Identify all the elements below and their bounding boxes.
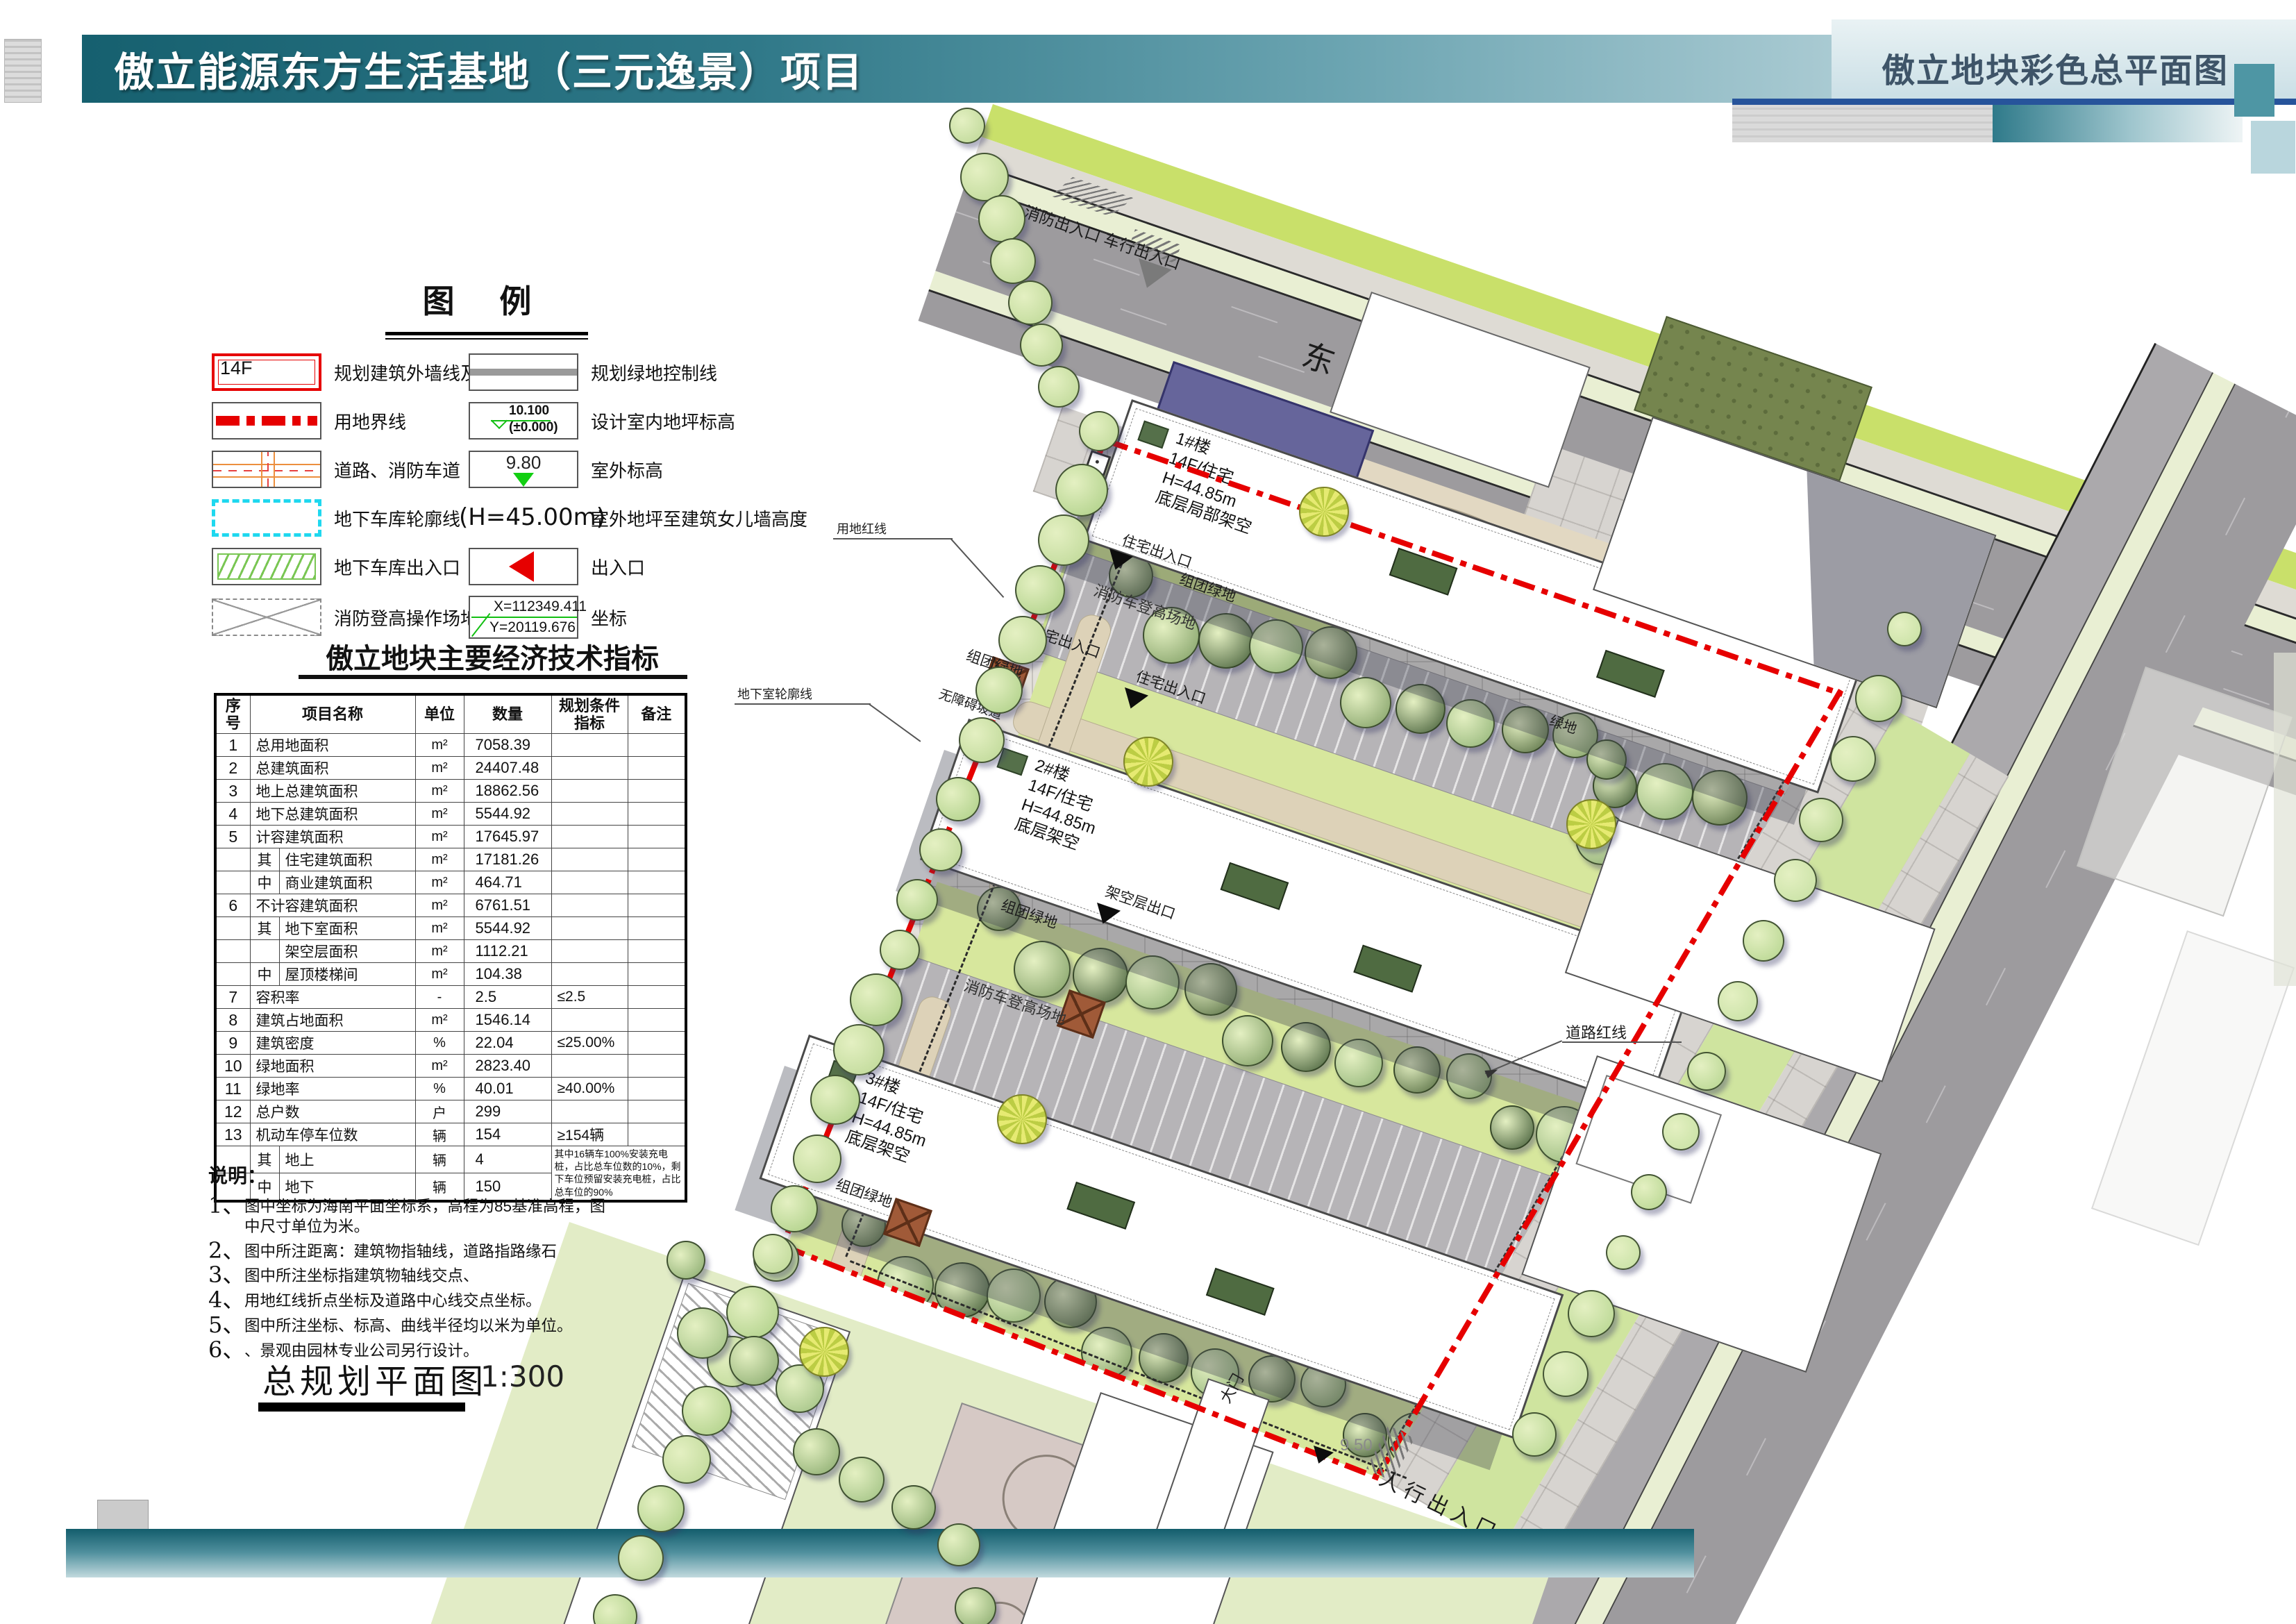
table-header-cell: 项目名称 <box>250 694 415 734</box>
tree-icon <box>771 1185 818 1232</box>
table-cell: 其 <box>250 917 279 940</box>
legend-symbol-elev-in-icon: 10.100(±0.000) <box>469 402 578 440</box>
header-rule <box>1732 99 2296 105</box>
table-row: 架空层面积m²1112.21 <box>215 940 686 963</box>
legend-row: 14F规划建筑外墙线及层数 <box>212 353 469 392</box>
legend-item-label: 室外标高 <box>591 457 663 483</box>
table-cell <box>551 894 628 917</box>
tree-icon <box>1340 677 1391 728</box>
tree-icon <box>1887 612 1922 646</box>
table-cell <box>628 848 686 871</box>
table-cell: 10 <box>215 1055 250 1078</box>
table-cell <box>551 917 628 940</box>
legend-row: 地下车库轮廓线 <box>212 499 469 537</box>
table-cell: 其 <box>250 848 279 871</box>
table-cell: 总用地面积 <box>250 734 415 757</box>
table-header-cell: 规划条件指标 <box>551 694 628 734</box>
tree-icon <box>1020 324 1063 367</box>
table-cell <box>551 780 628 803</box>
label-road-red-line: 道路红线 <box>1566 1021 1627 1043</box>
legend-title-underline <box>385 332 588 340</box>
legend-item-label: 规划绿地控制线 <box>591 360 717 385</box>
table-header-cell: 单位 <box>415 694 464 734</box>
accent-tree-icon <box>1299 487 1349 537</box>
table-cell: m² <box>415 940 464 963</box>
table-row: 6不计容建筑面积m²6761.51 <box>215 894 686 917</box>
table-cell <box>628 1009 686 1032</box>
tree-icon <box>880 930 920 970</box>
accent-tree-icon <box>997 1094 1047 1144</box>
table-cell: 18862.56 <box>464 780 551 803</box>
table-cell <box>628 734 686 757</box>
legend-row: 规划绿地控制线 <box>469 353 712 392</box>
adjacent-plan-ghost <box>2091 930 2295 1246</box>
table-cell <box>551 871 628 894</box>
table-cell: 1 <box>215 734 250 757</box>
table-cell <box>628 871 686 894</box>
table-cell: m² <box>415 963 464 986</box>
table-cell <box>628 917 686 940</box>
table-cell <box>628 780 686 803</box>
tree-icon <box>1055 464 1108 517</box>
table-cell: 屋顶楼梯间 <box>279 963 415 986</box>
tree-icon <box>1014 941 1071 998</box>
building-2-label: 2#楼 14F/住宅 H=44.85m 底层架空 <box>1012 755 1112 859</box>
table-cell <box>628 826 686 848</box>
note-item: 2、图中所注距离：建筑物指轴线，道路指路缘石 <box>208 1239 611 1262</box>
table-cell: 5 <box>215 826 250 848</box>
table-cell: ≤25.00% <box>551 1032 628 1055</box>
tree-icon <box>1222 1015 1273 1066</box>
table-cell: 不计容建筑面积 <box>250 894 415 917</box>
tree-icon <box>1830 736 1876 782</box>
tree-icon <box>937 1523 980 1566</box>
tree-icon <box>1687 1052 1726 1091</box>
table-cell: - <box>415 986 464 1009</box>
tree-icon <box>978 195 1025 242</box>
accent-tree-icon <box>1123 737 1173 787</box>
tree-icon <box>960 153 1009 201</box>
table-row: 4地下总建筑面积m²5544.92 <box>215 803 686 826</box>
table-cell: 商业建筑面积 <box>279 871 415 894</box>
plan-title: 总规划平面图 <box>262 1354 487 1403</box>
table-row: 3地上总建筑面积m²18862.56 <box>215 780 686 803</box>
tree-icon <box>1631 1174 1667 1210</box>
table-header-cell: 序号 <box>215 694 250 734</box>
label-level: 9.50 <box>1340 1436 1373 1455</box>
legend-row: 9.80室外标高 <box>469 450 712 489</box>
legend-symbol-value: 9.80 <box>470 452 577 474</box>
table-cell <box>551 848 628 871</box>
table-cell: 464.71 <box>464 871 551 894</box>
table-cell: 住宅建筑面积 <box>279 848 415 871</box>
table-cell: m² <box>415 803 464 826</box>
table-cell: ≥40.00% <box>551 1078 628 1100</box>
table-row: 8建筑占地面积m²1546.14 <box>215 1009 686 1032</box>
legend-symbol-fireground-icon <box>212 598 321 636</box>
legend-row: 出入口 <box>469 547 712 586</box>
label-basement-outline: 地下室轮廓线 <box>737 685 812 703</box>
legend-item-label: 设计室内地坪标高 <box>591 408 735 434</box>
legend-item-label: 用地界线 <box>334 408 406 434</box>
legend-item-label: 坐标 <box>591 605 627 630</box>
tree-icon <box>726 1286 779 1339</box>
tree-icon <box>998 616 1047 664</box>
table-title-underline <box>299 675 687 679</box>
legend-row: 道路、消防车道 <box>212 450 469 489</box>
table-row: 1总用地面积m²7058.39 <box>215 734 686 757</box>
tree-icon <box>677 1307 728 1359</box>
legend-item-label: 室外地坪至建筑女儿墙高度 <box>591 505 807 531</box>
legend-row: 10.100(±0.000)设计室内地坪标高 <box>469 401 712 440</box>
title-bar: 傲立能源东方生活基地（三元逸景）项目 <box>82 35 1832 103</box>
tree-icon <box>793 1135 841 1183</box>
legend-symbol-boundary-icon <box>212 402 321 440</box>
table-row: 12总户数户299 <box>215 1100 686 1123</box>
tree-icon <box>891 1485 936 1530</box>
table-cell: 户 <box>415 1100 464 1123</box>
table-cell: 绿地面积 <box>250 1055 415 1078</box>
table-cell: 2 <box>215 757 250 780</box>
legend-row: 消防登高操作场地 <box>212 596 469 639</box>
legend-symbol-value: 10.100 <box>509 403 549 419</box>
table-cell: m² <box>415 871 464 894</box>
table-cell: m² <box>415 917 464 940</box>
tree-icon <box>833 1024 885 1075</box>
table-cell: 中 <box>250 871 279 894</box>
economic-indicators-table: 序号项目名称单位数量规划条件指标备注1总用地面积m²7058.392总建筑面积m… <box>214 693 687 1203</box>
table-cell: 6761.51 <box>464 894 551 917</box>
table-cell: 104.38 <box>464 963 551 986</box>
table-cell: 1546.14 <box>464 1009 551 1032</box>
note-item: 4、用地红线折点坐标及道路中心线交点坐标。 <box>208 1289 611 1312</box>
legend-row: X=112349.411Y=20119.676坐标 <box>469 596 712 639</box>
table-cell: 24407.48 <box>464 757 551 780</box>
table-cell: % <box>415 1078 464 1100</box>
legend-symbol-garage-icon <box>212 499 321 537</box>
tree-icon <box>949 108 985 144</box>
roof-garden <box>1221 862 1289 910</box>
adjacent-plan-strip <box>2274 653 2296 986</box>
table-cell: m² <box>415 894 464 917</box>
table-cell: 地下总建筑面积 <box>250 803 415 826</box>
table-cell: 11 <box>215 1078 250 1100</box>
notes-block: 说明： 1、图中坐标为海南平面坐标系，高程为85基准高程，图中尺寸单位为米。2、… <box>208 1161 611 1364</box>
table-cell: 5544.92 <box>464 803 551 826</box>
table-cell: 7 <box>215 986 250 1009</box>
table-row: 其地下室面积m²5544.92 <box>215 917 686 940</box>
legend-symbol-elev-out-icon: 9.80 <box>469 451 578 488</box>
legend-symbol-greenline-icon <box>469 353 578 391</box>
tree-icon <box>1855 675 1902 722</box>
legend-symbol-value: (H=45.00m) <box>459 503 605 531</box>
table-cell <box>215 917 250 940</box>
table-cell: 299 <box>464 1100 551 1123</box>
tree-icon <box>955 1587 996 1624</box>
table-cell: 22.04 <box>464 1032 551 1055</box>
tree-icon <box>1079 411 1119 451</box>
table-title: 傲立地块主要经济技术指标 <box>296 636 689 676</box>
roof-garden <box>1206 1268 1275 1316</box>
tree-icon <box>753 1234 793 1274</box>
legend-item-label: 道路、消防车道 <box>334 457 460 483</box>
table-cell <box>628 963 686 986</box>
table-row: 7容积率-2.5≤2.5 <box>215 986 686 1009</box>
tree-icon <box>1038 514 1089 566</box>
table-cell: 架空层面积 <box>279 940 415 963</box>
tree-icon <box>793 1428 840 1475</box>
table-cell: 17181.26 <box>464 848 551 871</box>
table-cell <box>628 1032 686 1055</box>
table-row: 中商业建筑面积m²464.71 <box>215 871 686 894</box>
tree-icon <box>729 1336 779 1386</box>
table-cell <box>628 1100 686 1123</box>
legend-symbol-height-icon: (H=45.00m) <box>469 499 578 537</box>
roof-garden <box>1596 650 1665 698</box>
tree-icon <box>959 717 1005 763</box>
table-cell: ≥154辆 <box>551 1123 628 1146</box>
table-row: 9建筑密度%22.04≤25.00% <box>215 1032 686 1055</box>
legend-row: 用地界线 <box>212 401 469 440</box>
header-gradient-decor <box>1993 105 2243 142</box>
table-cell: m² <box>415 757 464 780</box>
table-row: 11绿地率%40.01≥40.00% <box>215 1078 686 1100</box>
table-cell <box>551 1100 628 1123</box>
table-cell <box>628 757 686 780</box>
notes-title: 说明： <box>208 1161 611 1189</box>
table-row: 2总建筑面积m²24407.48 <box>215 757 686 780</box>
tree-icon <box>1774 859 1817 902</box>
table-cell <box>551 734 628 757</box>
note-item: 1、图中坐标为海南平面坐标系，高程为85基准高程，图中尺寸单位为米。 <box>208 1194 611 1237</box>
table-cell: 计容建筑面积 <box>250 826 415 848</box>
label-land-red-line: 用地红线 <box>837 519 887 537</box>
tree-icon <box>1568 1290 1615 1337</box>
table-cell: m² <box>415 826 464 848</box>
legend-symbol-ramp-icon <box>212 548 321 585</box>
table-row: 5计容建筑面积m²17645.97 <box>215 826 686 848</box>
table-cell: m² <box>415 848 464 871</box>
table-cell: 154 <box>464 1123 551 1146</box>
table-cell: 总建筑面积 <box>250 757 415 780</box>
table-header-cell: 备注 <box>628 694 686 734</box>
legend-title: 图 例 <box>389 276 583 322</box>
table-cell: 中 <box>250 963 279 986</box>
tree-icon <box>1008 281 1053 325</box>
table-cell <box>628 1123 686 1146</box>
table-cell: m² <box>415 1009 464 1032</box>
legend-item-label: 地下车库出入口 <box>334 554 460 580</box>
plan-sheet: 东府南路 <box>0 0 2296 1624</box>
table-cell: 9 <box>215 1032 250 1055</box>
tree-icon <box>896 879 938 921</box>
table-header-cell: 数量 <box>464 694 551 734</box>
note-item: 5、图中所注坐标、标高、曲线半径均以米为单位。 <box>208 1314 611 1337</box>
table-cell: 7058.39 <box>464 734 551 757</box>
tree-icon <box>850 973 903 1026</box>
table-cell: m² <box>415 780 464 803</box>
tree-icon <box>682 1386 732 1436</box>
table-cell <box>628 1078 686 1100</box>
building-3-label: 3#楼 14F/住宅 H=44.85m 底层架空 <box>842 1068 942 1171</box>
tree-icon <box>1543 1351 1589 1397</box>
table-cell <box>551 1055 628 1078</box>
table-cell: 建筑占地面积 <box>250 1009 415 1032</box>
table-cell <box>551 757 628 780</box>
tree-icon <box>637 1485 685 1532</box>
footer-bar <box>66 1529 1694 1577</box>
table-cell: 容积率 <box>250 986 415 1009</box>
table-row: 10绿地面积m²2823.40 <box>215 1055 686 1078</box>
legend: 14F规划建筑外墙线及层数规划绿地控制线用地界线10.100(±0.000)设计… <box>212 353 712 639</box>
table-cell <box>628 940 686 963</box>
table-cell <box>551 1009 628 1032</box>
table-cell <box>215 940 250 963</box>
table-cell <box>628 986 686 1009</box>
table-cell: 5544.92 <box>464 917 551 940</box>
legend-symbol-bld-icon: 14F <box>212 353 321 391</box>
legend-row: 地下车库出入口 <box>212 547 469 586</box>
tree-icon <box>1799 798 1843 842</box>
sheet-subtitle: 傲立地块彩色总平面图 <box>1847 43 2229 92</box>
table-cell: 40.01 <box>464 1078 551 1100</box>
legend-symbol-coord-icon: X=112349.411Y=20119.676 <box>469 596 578 639</box>
plan-scale: 1:300 <box>480 1359 564 1393</box>
building-1-label: 1#楼 14F/住宅 H=44.85m 底层局部架空 <box>1153 428 1274 539</box>
table-cell <box>551 826 628 848</box>
table-cell: 1112.21 <box>464 940 551 963</box>
legend-symbol-road-icon <box>212 451 321 488</box>
tree-icon <box>667 1241 705 1280</box>
table-cell: m² <box>415 734 464 757</box>
table-row: 中屋顶楼梯间m²104.38 <box>215 963 686 986</box>
tree-icon <box>1606 1235 1641 1270</box>
tree-icon <box>1662 1113 1700 1150</box>
plan-title-underline <box>258 1403 465 1412</box>
tree-icon <box>919 828 962 871</box>
legend-symbol-value: (±0.000) <box>509 420 558 435</box>
table-cell: 2.5 <box>464 986 551 1009</box>
sheet-title: 傲立能源东方生活基地（三元逸景）项目 <box>114 40 864 98</box>
table-cell: 2823.40 <box>464 1055 551 1078</box>
accent-tree-icon <box>1566 799 1616 849</box>
table-cell: 17645.97 <box>464 826 551 848</box>
tree-icon <box>810 1075 860 1125</box>
table-cell: ≤2.5 <box>551 986 628 1009</box>
tree-icon <box>990 238 1036 284</box>
legend-symbol-value: Y=20119.676 <box>489 619 576 636</box>
tree-icon <box>618 1535 664 1581</box>
header-square-decor <box>2234 64 2274 117</box>
table-cell <box>551 963 628 986</box>
table-cell <box>628 1055 686 1078</box>
table-cell <box>215 871 250 894</box>
corner-paper-icon <box>4 39 42 103</box>
table-cell: % <box>415 1032 464 1055</box>
table-cell <box>628 803 686 826</box>
table-cell <box>551 940 628 963</box>
table-cell: 地上总建筑面积 <box>250 780 415 803</box>
legend-symbol-entry-icon <box>469 548 578 585</box>
table-cell: 8 <box>215 1009 250 1032</box>
table-cell: 13 <box>215 1123 250 1146</box>
note-item: 3、图中所注坐标指建筑物轴线交点、 <box>208 1264 611 1287</box>
table-cell: 6 <box>215 894 250 917</box>
legend-item-label: 出入口 <box>591 554 645 580</box>
table-row: 其住宅建筑面积m²17181.26 <box>215 848 686 871</box>
table-cell: 机动车停车位数 <box>250 1123 415 1146</box>
legend-symbol-value: X=112349.411 <box>494 598 587 615</box>
table-cell: 绿地率 <box>250 1078 415 1100</box>
legend-symbol-text: 14F <box>220 358 253 379</box>
tree-icon <box>1038 366 1080 408</box>
table-cell <box>215 963 250 986</box>
table-cell: 4 <box>215 803 250 826</box>
table-cell <box>551 803 628 826</box>
table-cell: 12 <box>215 1100 250 1123</box>
table-cell: m² <box>415 1055 464 1078</box>
table-cell: 辆 <box>415 1123 464 1146</box>
tree-icon <box>1490 1105 1534 1150</box>
table-cell: 3 <box>215 780 250 803</box>
table-cell <box>628 894 686 917</box>
legend-item-label: 消防登高操作场地 <box>334 605 478 630</box>
tree-icon <box>1512 1412 1557 1457</box>
accent-tree-icon <box>799 1327 849 1377</box>
table-cell <box>215 848 250 871</box>
roof-garden <box>1353 945 1422 993</box>
footer-square-decor <box>97 1500 149 1533</box>
roof-garden <box>1066 1182 1135 1230</box>
header-square-decor <box>2251 121 2295 174</box>
table-row: 13机动车停车位数辆154≥154辆 <box>215 1123 686 1146</box>
table-cell: 建筑密度 <box>250 1032 415 1055</box>
legend-item-label: 地下车库轮廓线 <box>334 505 460 531</box>
table-cell <box>250 940 279 963</box>
table-cell: 总户数 <box>250 1100 415 1123</box>
header-stripes-decor <box>1732 105 1993 142</box>
table-cell: 地下室面积 <box>279 917 415 940</box>
legend-row: (H=45.00m)室外地坪至建筑女儿墙高度 <box>469 499 712 537</box>
